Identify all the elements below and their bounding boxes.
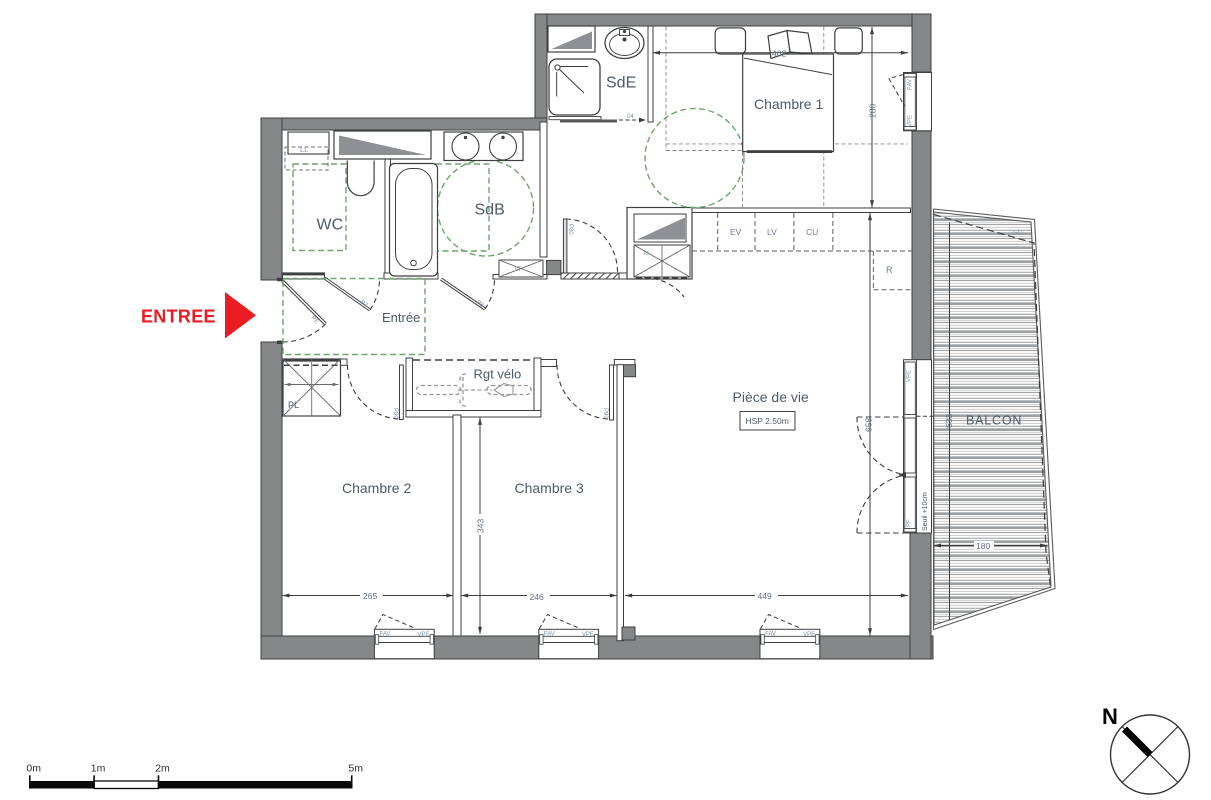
svg-text:LL: LL (300, 145, 308, 154)
svg-text:5m: 5m (348, 763, 363, 775)
svg-text:P90: P90 (602, 408, 608, 419)
svg-text:449: 449 (758, 591, 772, 601)
svg-text:BALCON: BALCON (966, 414, 1022, 428)
svg-text:FAV: FAV (380, 631, 391, 637)
svg-text:180: 180 (976, 541, 990, 551)
svg-text:R: R (886, 265, 893, 275)
svg-text:SdE: SdE (606, 75, 636, 92)
svg-text:658: 658 (864, 418, 874, 432)
svg-text:2m: 2m (155, 763, 170, 775)
svg-text:Pièce de vie: Pièce de vie (733, 389, 809, 405)
svg-text:246: 246 (530, 592, 544, 602)
svg-text:Rgt vélo: Rgt vélo (474, 367, 522, 382)
svg-text:LV: LV (767, 227, 777, 237)
svg-text:VPE: VPE (803, 632, 815, 638)
svg-text:FAV: FAV (765, 631, 776, 637)
svg-text:VPE: VPE (908, 115, 914, 127)
svg-text:VPE: VPE (418, 632, 430, 638)
svg-text:0m: 0m (26, 763, 41, 775)
svg-text:1m: 1m (91, 763, 106, 775)
svg-text:265: 265 (363, 591, 377, 601)
svg-text:SdB: SdB (475, 202, 505, 219)
svg-text:Entrée: Entrée (382, 310, 420, 325)
svg-text:280: 280 (868, 104, 878, 118)
svg-text:LT: LT (515, 267, 522, 273)
svg-text:FAV: FAV (908, 79, 914, 90)
svg-text:Chambre 2: Chambre 2 (342, 480, 411, 496)
svg-text:VPE: VPE (582, 632, 594, 638)
svg-text:Chambre 1: Chambre 1 (754, 96, 823, 112)
svg-text:ld: ld (644, 251, 649, 257)
svg-text:Seuil +10cm: Seuil +10cm (922, 492, 929, 531)
svg-text:P80: P80 (392, 408, 398, 419)
svg-text:WC: WC (317, 217, 344, 234)
svg-text:P80: P80 (567, 224, 573, 235)
svg-text:PF: PF (907, 519, 913, 527)
svg-text:VPE: VPE (907, 370, 913, 382)
svg-text:FAV: FAV (544, 631, 555, 637)
svg-text:402: 402 (772, 48, 786, 58)
svg-text:GC: GC (1013, 231, 1023, 237)
svg-text:ENTREE: ENTREE (141, 307, 216, 327)
svg-text:CU: CU (806, 227, 818, 237)
svg-text:04: 04 (627, 114, 634, 120)
svg-text:N: N (1102, 704, 1118, 729)
svg-text:HSP 2.50m: HSP 2.50m (746, 416, 789, 426)
svg-text:343: 343 (476, 519, 486, 533)
svg-text:EV: EV (730, 227, 742, 237)
svg-text:633: 633 (944, 414, 954, 428)
svg-text:PL: PL (288, 400, 299, 410)
svg-text:Chambre 3: Chambre 3 (515, 480, 584, 496)
